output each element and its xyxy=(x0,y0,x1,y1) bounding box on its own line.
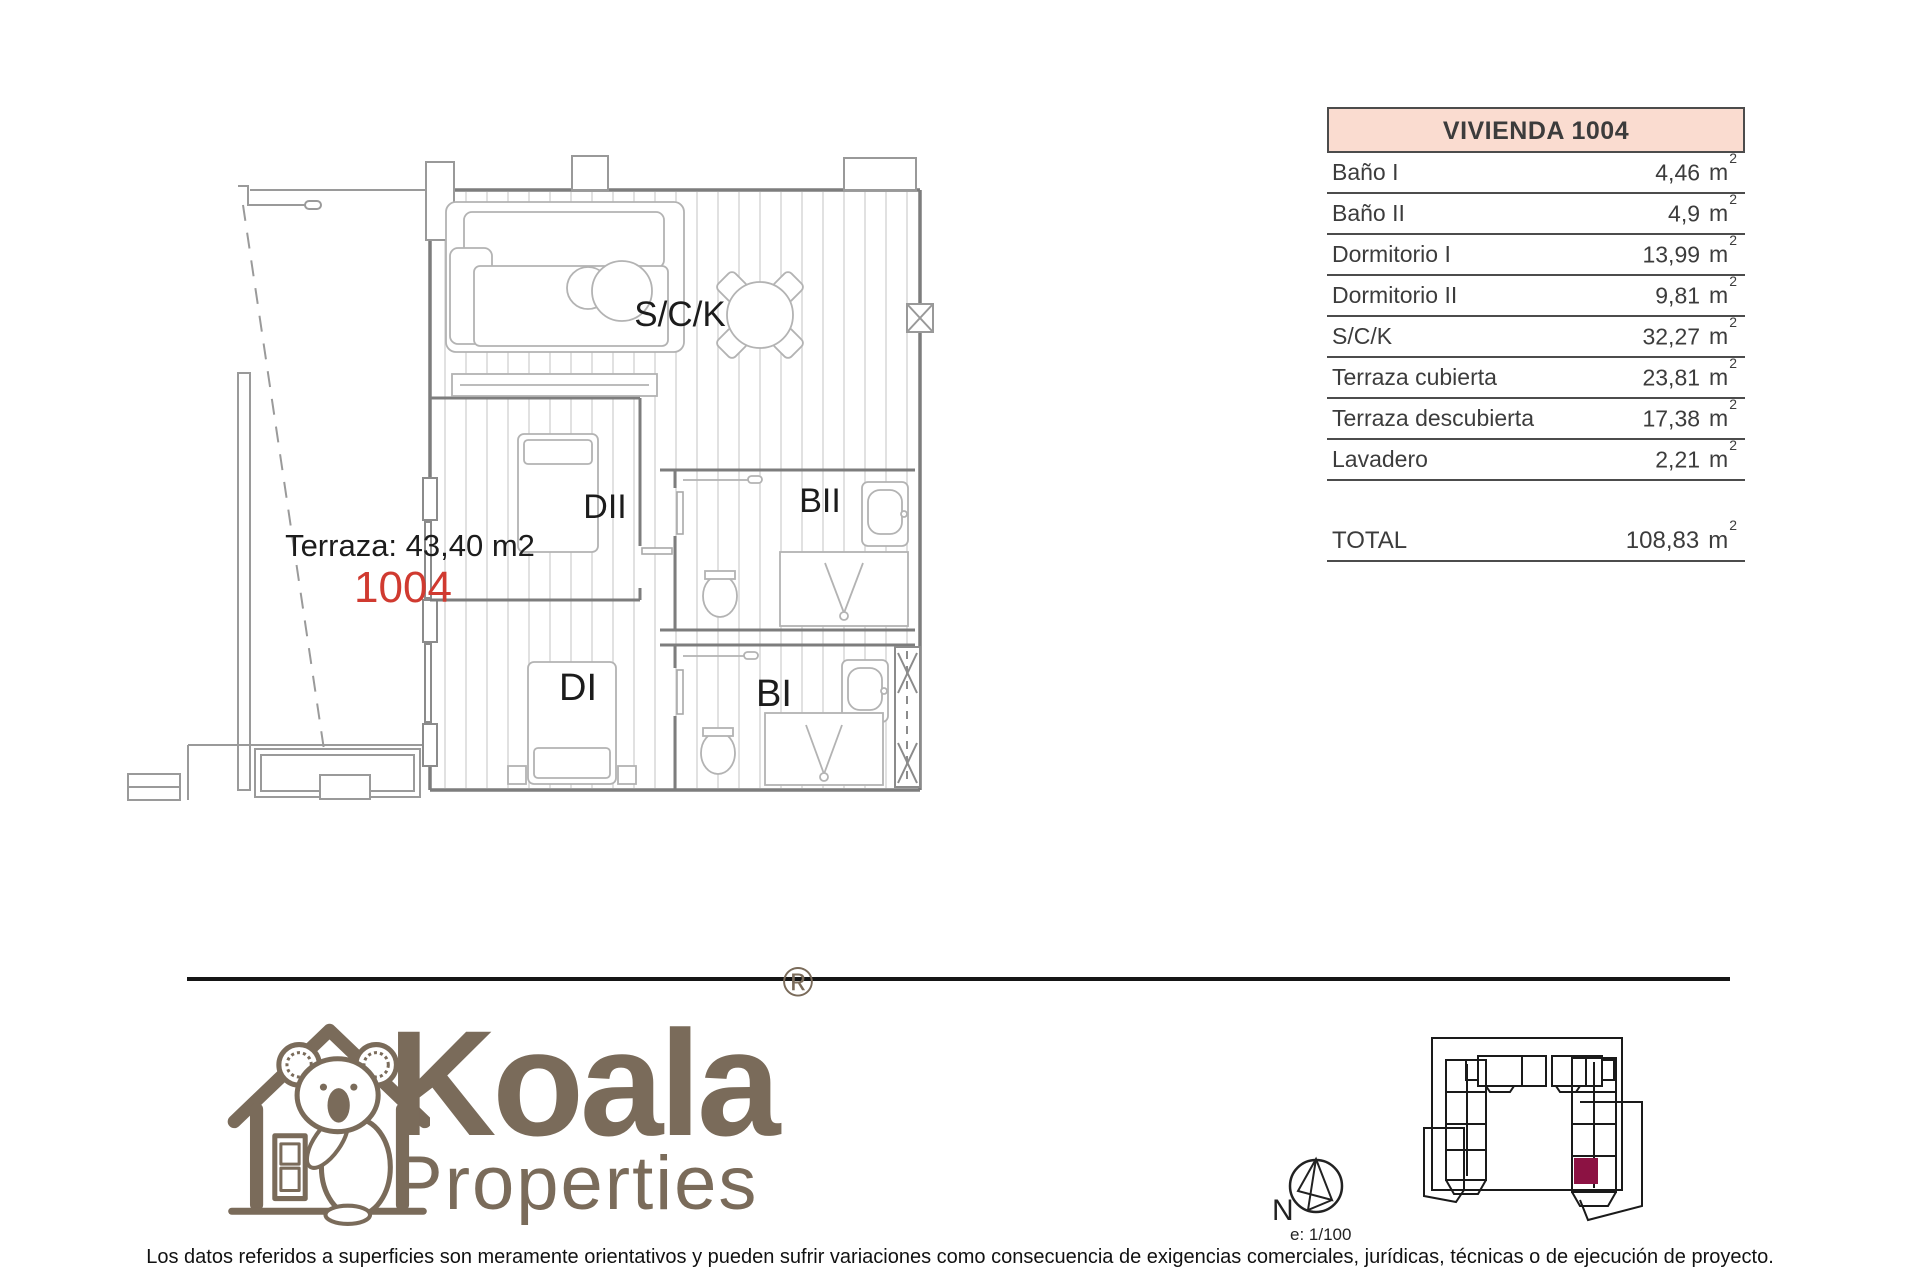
row-label: S/C/K xyxy=(1332,323,1392,350)
table-row: Terraza cubierta 23,81m2 xyxy=(1327,358,1745,399)
highlighted-unit xyxy=(1574,1158,1598,1184)
room-label-bi: BI xyxy=(756,673,792,715)
room-label-di: DI xyxy=(559,667,597,709)
row-value: 9,81m2 xyxy=(1655,282,1737,310)
table-total-row: TOTAL 108,83m2 xyxy=(1327,521,1745,562)
surface-table: VIVIENDA 1004 Baño I 4,46m2 Baño II 4,9m… xyxy=(1327,107,1745,562)
total-label: TOTAL xyxy=(1332,527,1407,555)
row-value: 2,21m2 xyxy=(1655,446,1737,474)
footer-divider xyxy=(187,977,1730,981)
terrace-outline xyxy=(128,186,432,800)
row-label: Baño II xyxy=(1332,200,1405,227)
kitchen-counter xyxy=(452,374,657,396)
table-row: Lavadero 2,21m2 xyxy=(1327,440,1745,481)
row-label: Terraza cubierta xyxy=(1332,364,1497,391)
table-row: Dormitorio I 13,99m2 xyxy=(1327,235,1745,276)
scale-label: e: 1/100 xyxy=(1290,1225,1351,1244)
surface-table-header: VIVIENDA 1004 xyxy=(1327,107,1745,153)
table-row: S/C/K 32,27m2 xyxy=(1327,317,1745,358)
brand-subtitle: Properties xyxy=(392,1146,807,1222)
total-value: 108,83m2 xyxy=(1626,526,1737,555)
table-row: Baño II 4,9m2 xyxy=(1327,194,1745,235)
row-label: Baño I xyxy=(1332,159,1399,186)
unit-number-label: 1004 xyxy=(354,563,452,612)
brand-wordmark: Koala® Properties xyxy=(388,1008,807,1222)
terrace-area-label: Terraza: 43,40 m2 xyxy=(285,528,535,563)
disclaimer-text: Los datos referidos a superficies son me… xyxy=(0,1246,1920,1269)
table-row: Terraza descubierta 17,38m2 xyxy=(1327,399,1745,440)
compass-north-label: N xyxy=(1272,1194,1294,1227)
table-row: Dormitorio II 9,81m2 xyxy=(1327,276,1745,317)
room-label-dii: DII xyxy=(583,488,626,526)
row-label: Dormitorio I xyxy=(1332,241,1451,268)
brochure-page: S/C/K DII BII DI BI Terraza: 43,40 m2 10… xyxy=(0,0,1920,1280)
row-value: 13,99m2 xyxy=(1642,241,1737,269)
table-row: Baño I 4,46m2 xyxy=(1327,153,1745,194)
row-value: 4,9m2 xyxy=(1668,200,1737,228)
row-label: Terraza descubierta xyxy=(1332,405,1534,432)
row-value: 32,27m2 xyxy=(1642,323,1737,351)
row-value: 23,81m2 xyxy=(1642,364,1737,392)
table-spacer xyxy=(1327,481,1745,521)
row-value: 17,38m2 xyxy=(1642,405,1737,433)
row-label: Lavadero xyxy=(1332,446,1428,473)
brand-name: Koala® xyxy=(388,1008,807,1158)
floor-plan-svg: S/C/K DII BII DI BI Terraza: 43,40 m2 10… xyxy=(120,148,955,808)
floor-plan-drawing: S/C/K DII BII DI BI Terraza: 43,40 m2 10… xyxy=(120,148,955,808)
dining-table xyxy=(715,270,805,360)
compass-icon: N e: 1/100 xyxy=(1262,1150,1362,1245)
row-label: Dormitorio II xyxy=(1332,282,1457,309)
room-label-sck: S/C/K xyxy=(634,295,725,334)
duct-shaft xyxy=(895,647,920,787)
site-plan-icon xyxy=(1422,1030,1650,1228)
room-label-bii: BII xyxy=(799,482,841,520)
row-value: 4,46m2 xyxy=(1655,159,1737,187)
registered-trademark-icon: ® xyxy=(782,958,813,1005)
